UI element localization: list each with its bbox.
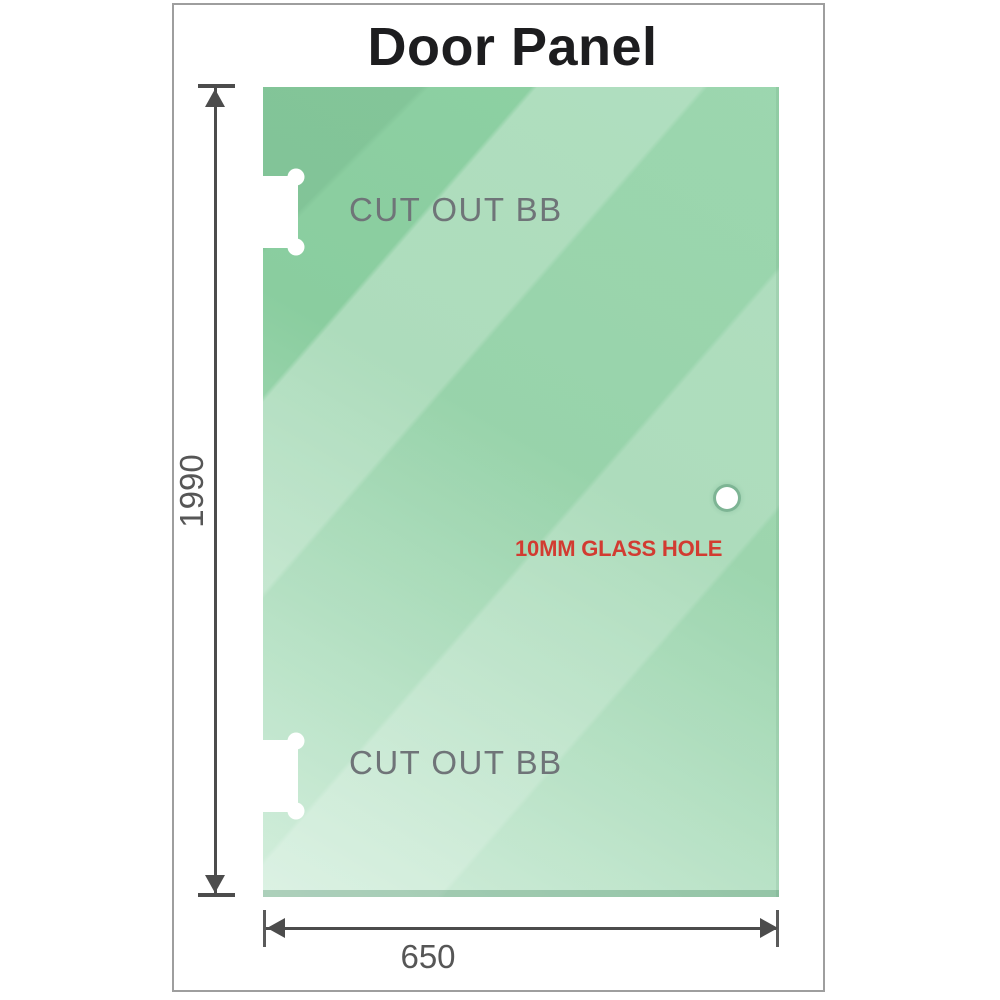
hinge-cutout-bottom bbox=[263, 730, 307, 822]
arrow-left-icon bbox=[267, 918, 285, 938]
height-dimension-cap-bottom bbox=[198, 893, 235, 897]
hinge-cutout-top bbox=[263, 166, 307, 258]
width-dimension-label: 650 bbox=[358, 938, 498, 976]
height-dimension-cap-top bbox=[198, 84, 235, 88]
width-dimension-tick-left bbox=[263, 910, 266, 947]
door-panel-diagram: Door Panel CUT OUT BB CUT OUT BB 10MM GL… bbox=[0, 0, 1000, 1000]
arrow-right-icon bbox=[760, 918, 778, 938]
arrow-up-icon bbox=[205, 89, 225, 107]
glass-hole bbox=[716, 487, 738, 509]
height-dimension-label: 1990 bbox=[172, 421, 212, 561]
cutout-bottom-label: CUT OUT BB bbox=[349, 744, 563, 782]
arrow-down-icon bbox=[205, 875, 225, 893]
glass-panel: CUT OUT BB CUT OUT BB 10MM GLASS HOLE bbox=[263, 87, 779, 897]
width-dimension-line bbox=[266, 927, 778, 930]
glass-hole-label: 10MM GLASS HOLE bbox=[515, 536, 722, 562]
cutout-top-label: CUT OUT BB bbox=[349, 191, 563, 229]
height-dimension-line bbox=[214, 88, 217, 894]
page-title: Door Panel bbox=[186, 16, 839, 78]
